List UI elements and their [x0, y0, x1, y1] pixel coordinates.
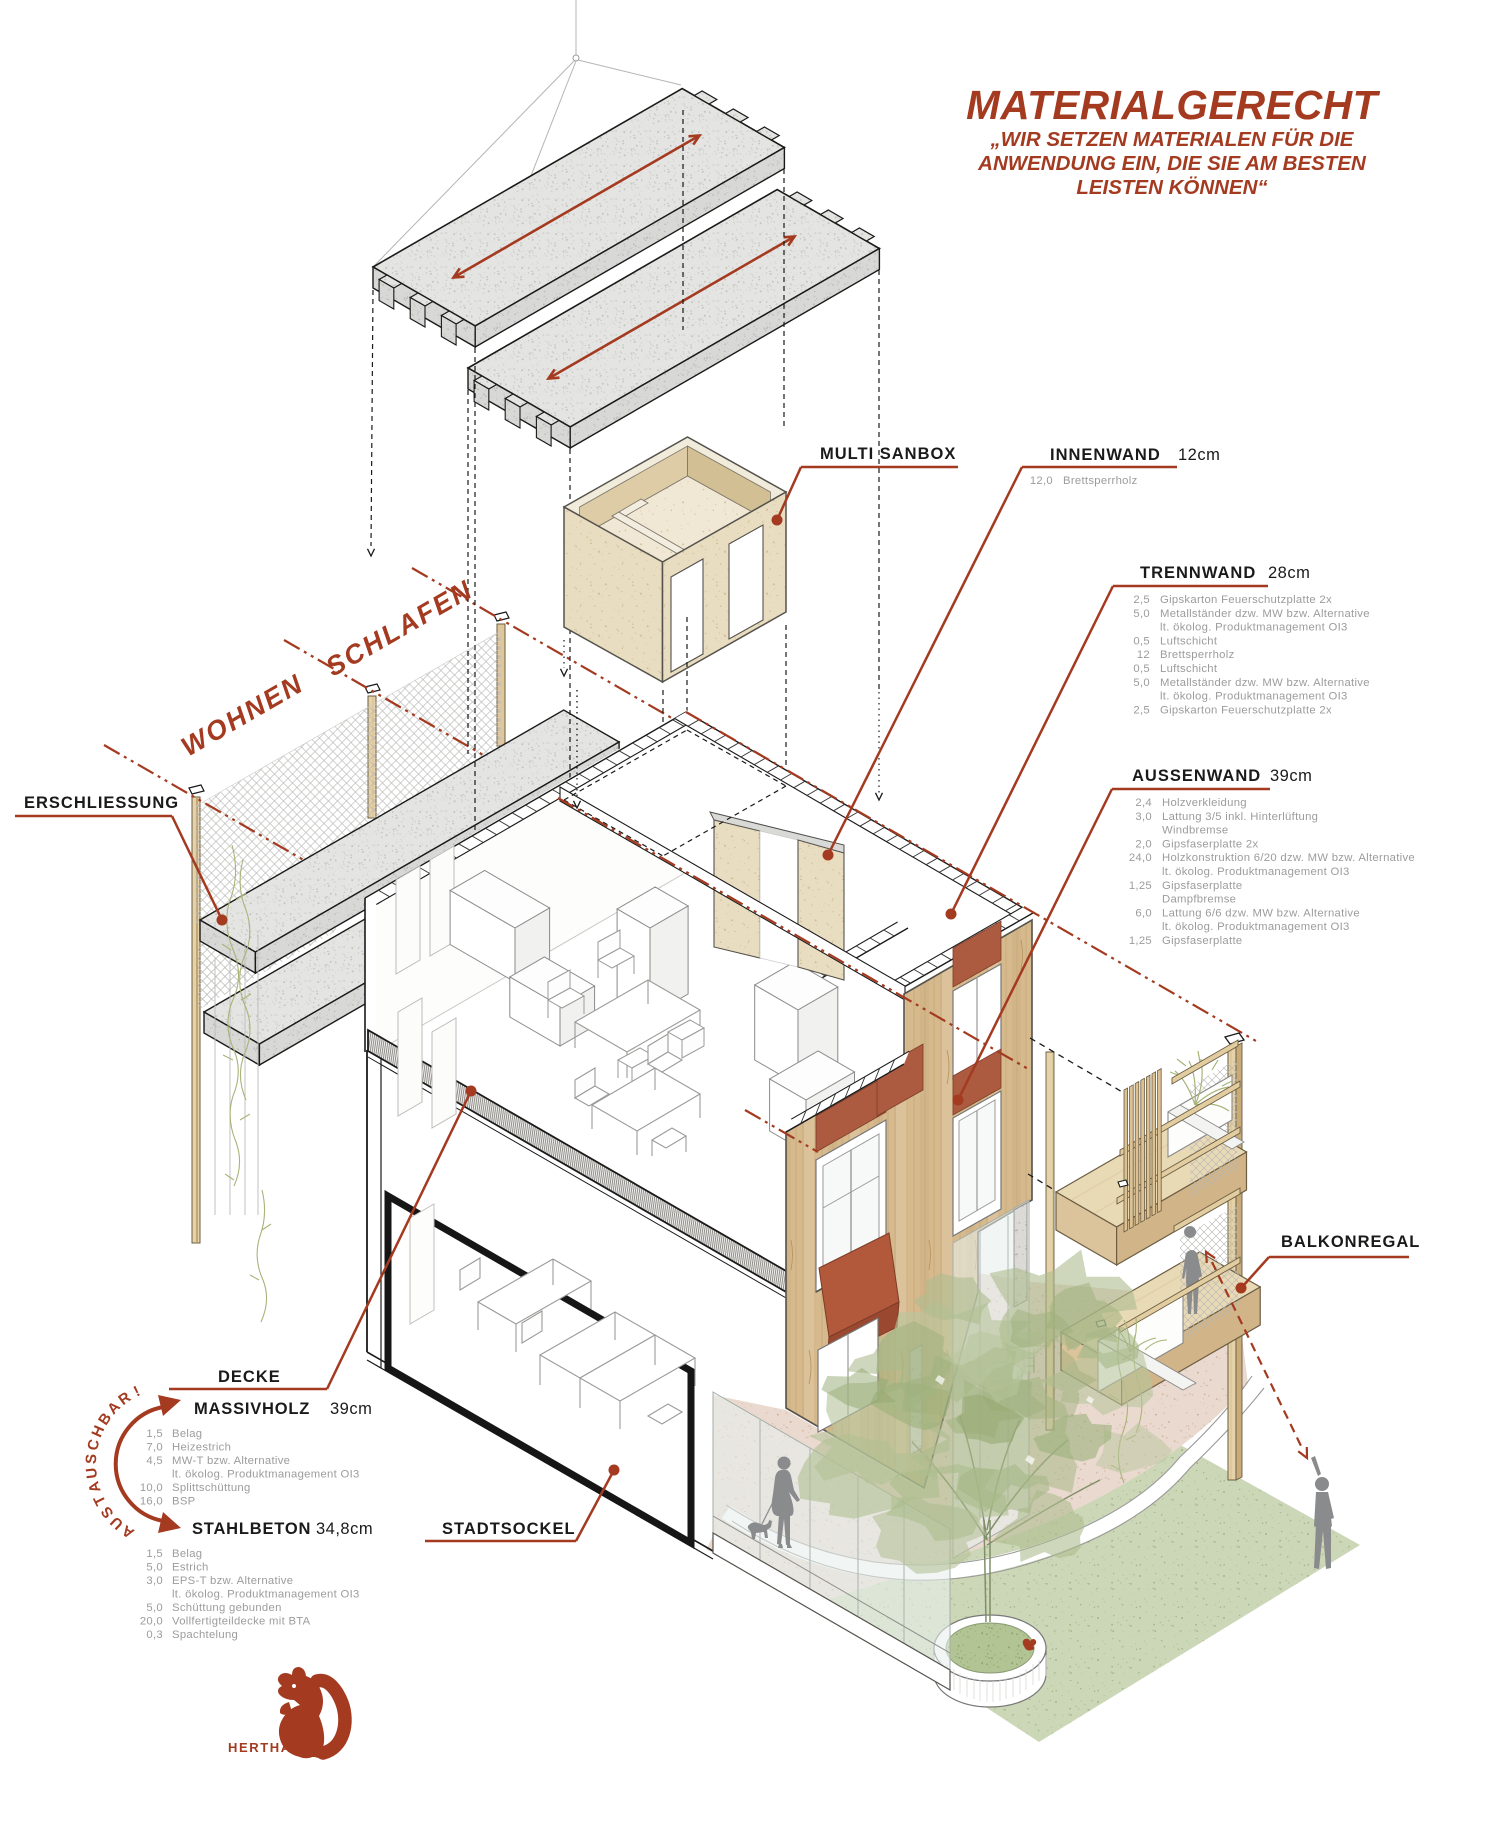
svg-text:1,25: 1,25: [1129, 935, 1152, 947]
svg-text:39cm: 39cm: [1270, 767, 1312, 785]
svg-text:4,5: 4,5: [146, 1455, 163, 1467]
svg-text:2,0: 2,0: [1135, 838, 1152, 850]
svg-text:Vollfertigteildecke mit BTA: Vollfertigteildecke mit BTA: [172, 1616, 311, 1628]
svg-text:5,0: 5,0: [146, 1562, 163, 1574]
svg-text:STAHLBETON: STAHLBETON: [192, 1520, 311, 1538]
svg-text:BALKONREGAL: BALKONREGAL: [1281, 1233, 1420, 1251]
svg-text:2,5: 2,5: [1133, 704, 1150, 716]
svg-text:TRENNWAND: TRENNWAND: [1140, 564, 1256, 582]
svg-text:Heizestrich: Heizestrich: [172, 1442, 231, 1454]
svg-text:MATERIALGERECHT: MATERIALGERECHT: [966, 82, 1380, 128]
svg-text:lt. ökolog. Produktmanagement: lt. ökolog. Produktmanagement OI3: [1162, 921, 1350, 933]
svg-text:39cm: 39cm: [330, 1400, 372, 1418]
svg-text:2,4: 2,4: [1135, 797, 1152, 809]
svg-text:INNENWAND: INNENWAND: [1050, 446, 1161, 464]
svg-text:Belag: Belag: [172, 1548, 202, 1560]
svg-text:Spachtelung: Spachtelung: [172, 1629, 238, 1641]
svg-text:ANWENDUNG EIN, DIE SIE AM BEST: ANWENDUNG EIN, DIE SIE AM BESTEN: [977, 152, 1367, 175]
svg-text:1,5: 1,5: [146, 1428, 163, 1440]
svg-text:5,0: 5,0: [1133, 608, 1150, 620]
svg-text:12cm: 12cm: [1178, 446, 1220, 464]
svg-text:STADTSOCKEL: STADTSOCKEL: [442, 1520, 576, 1538]
svg-text:1,5: 1,5: [146, 1548, 163, 1560]
svg-text:Schüttung gebunden: Schüttung gebunden: [172, 1602, 282, 1614]
svg-text:Gipsfaserplatte 2x: Gipsfaserplatte 2x: [1162, 838, 1258, 850]
svg-text:Holzverkleidung: Holzverkleidung: [1162, 797, 1247, 809]
svg-text:MW-T bzw. Alternative: MW-T bzw. Alternative: [172, 1455, 290, 1467]
svg-text:28cm: 28cm: [1268, 564, 1310, 582]
svg-text:MULTI SANBOX: MULTI SANBOX: [820, 445, 956, 463]
svg-text:S: S: [83, 1453, 101, 1464]
svg-text:„WIR SETZEN MATERIALEN FÜR DIE: „WIR SETZEN MATERIALEN FÜR DIE: [990, 128, 1355, 151]
svg-text:Belag: Belag: [172, 1428, 202, 1440]
svg-text:5,0: 5,0: [146, 1602, 163, 1614]
svg-text:16,0: 16,0: [140, 1496, 163, 1508]
svg-text:0,5: 0,5: [1133, 635, 1150, 647]
svg-text:5,0: 5,0: [1133, 677, 1150, 689]
svg-text:HERTHA: HERTHA: [228, 1740, 292, 1755]
svg-text:1,25: 1,25: [1129, 880, 1152, 892]
svg-text:2,5: 2,5: [1133, 594, 1150, 606]
svg-text:Luftschicht: Luftschicht: [1160, 663, 1218, 675]
svg-text:Metallständer dzw. MW bzw. Alt: Metallständer dzw. MW bzw. Alternative: [1160, 677, 1370, 689]
svg-text:Gipsfaserplatte: Gipsfaserplatte: [1162, 935, 1242, 947]
svg-text:6,0: 6,0: [1135, 907, 1152, 919]
svg-text:U: U: [83, 1467, 101, 1480]
svg-text:12: 12: [1137, 649, 1150, 661]
svg-text:Gipskarton Feuerschutzplatte 2: Gipskarton Feuerschutzplatte 2x: [1160, 704, 1332, 716]
svg-text:Lattung 3/5 inkl. Hinterlüftun: Lattung 3/5 inkl. Hinterlüftung: [1162, 811, 1318, 823]
svg-text:Splittschüttung: Splittschüttung: [172, 1482, 251, 1494]
svg-text:Brettsperrholz: Brettsperrholz: [1160, 649, 1235, 661]
svg-text:ERSCHLIESSUNG: ERSCHLIESSUNG: [24, 794, 179, 812]
svg-text:3,0: 3,0: [146, 1575, 163, 1587]
svg-text:3,0: 3,0: [1135, 811, 1152, 823]
svg-text:7,0: 7,0: [146, 1442, 163, 1454]
svg-text:lt. ökolog. Produktmanagement: lt. ökolog. Produktmanagement OI3: [172, 1589, 360, 1601]
svg-text:lt. ökolog. Produktmanagement: lt. ökolog. Produktmanagement OI3: [1160, 691, 1348, 703]
svg-text:20,0: 20,0: [140, 1616, 163, 1628]
svg-text:BSP: BSP: [172, 1496, 196, 1508]
svg-text:Metallständer dzw. MW bzw. Alt: Metallständer dzw. MW bzw. Alternative: [1160, 608, 1370, 620]
svg-text:Lattung 6/6 dzw. MW bzw. Alter: Lattung 6/6 dzw. MW bzw. Alternative: [1162, 907, 1360, 919]
svg-text:Luftschicht: Luftschicht: [1160, 635, 1218, 647]
svg-text:34,8cm: 34,8cm: [316, 1520, 373, 1538]
svg-text:12,0: 12,0: [1030, 475, 1053, 487]
svg-text:lt. ökolog. Produktmanagement: lt. ökolog. Produktmanagement OI3: [1162, 866, 1350, 878]
svg-text:DECKE: DECKE: [218, 1368, 281, 1386]
svg-text:lt. ökolog. Produktmanagement: lt. ökolog. Produktmanagement OI3: [1160, 622, 1348, 634]
svg-text:Gipsfaserplatte: Gipsfaserplatte: [1162, 880, 1242, 892]
svg-text:0,3: 0,3: [146, 1629, 163, 1641]
svg-text:Dampfbremse: Dampfbremse: [1162, 894, 1236, 906]
svg-text:EPS-T bzw. Alternative: EPS-T bzw. Alternative: [172, 1575, 293, 1587]
svg-text:LEISTEN KÖNNEN“: LEISTEN KÖNNEN“: [1076, 176, 1268, 199]
svg-text:Holzkonstruktion 6/20 dzw. MW: Holzkonstruktion 6/20 dzw. MW bzw. Alter…: [1162, 852, 1415, 864]
svg-text:Estrich: Estrich: [172, 1562, 209, 1574]
svg-text:MASSIVHOLZ: MASSIVHOLZ: [194, 1400, 310, 1418]
svg-text:10,0: 10,0: [140, 1482, 163, 1494]
svg-text:AUSSENWAND: AUSSENWAND: [1132, 767, 1261, 785]
svg-text:0,5: 0,5: [1133, 663, 1150, 675]
svg-text:Brettsperrholz: Brettsperrholz: [1063, 475, 1138, 487]
svg-text:Gipskarton Feuerschutzplatte 2: Gipskarton Feuerschutzplatte 2x: [1160, 594, 1332, 606]
svg-text:lt. ökolog. Produktmanagement: lt. ökolog. Produktmanagement OI3: [172, 1469, 360, 1481]
svg-text:24,0: 24,0: [1129, 852, 1152, 864]
svg-text:Windbremse: Windbremse: [1162, 825, 1228, 837]
